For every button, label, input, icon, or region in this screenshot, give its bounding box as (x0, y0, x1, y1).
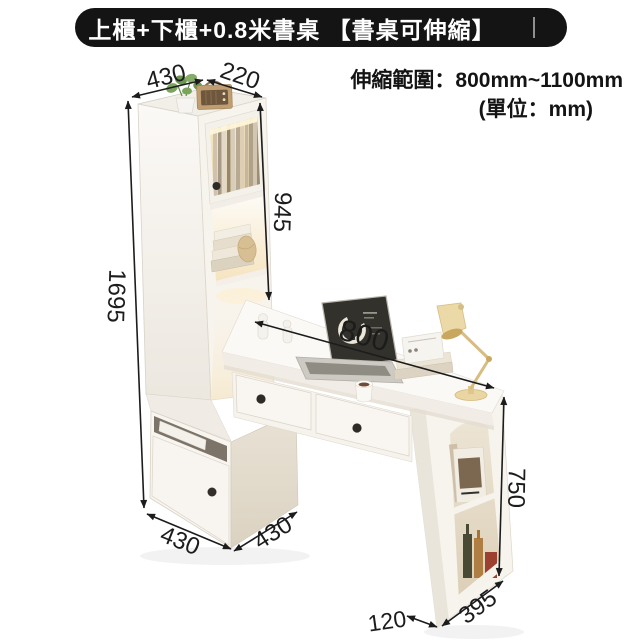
figurine (258, 314, 268, 340)
glass-door (205, 109, 265, 204)
dim-label-side-shelf-width: 120 (366, 605, 408, 636)
drawer-left-knob (256, 394, 265, 403)
drawer-right-knob (352, 423, 361, 432)
plant-pot (176, 98, 195, 113)
furniture-diagram: 430 220 945 1695 800 750 (0, 0, 640, 640)
dim-label-total-height: 1695 (102, 269, 131, 323)
dim-label-cabinet-top-width: 430 (143, 59, 188, 95)
coffee-cup (356, 381, 373, 402)
dim-total-height: 1695 (102, 101, 144, 508)
dim-label-desk-height: 750 (502, 468, 530, 509)
glass-door-knob (213, 182, 221, 190)
magazine (449, 444, 487, 503)
side-shelf-unit (410, 394, 513, 628)
product-image: 上櫃+下櫃+0.8米書桌 【書桌可伸縮】 伸縮範圍：800mm~1100mm (… (0, 0, 640, 640)
lower-cabinet-knob (208, 488, 217, 497)
white-box (402, 332, 444, 364)
dim-label-upper-cabinet-height: 945 (268, 192, 296, 233)
